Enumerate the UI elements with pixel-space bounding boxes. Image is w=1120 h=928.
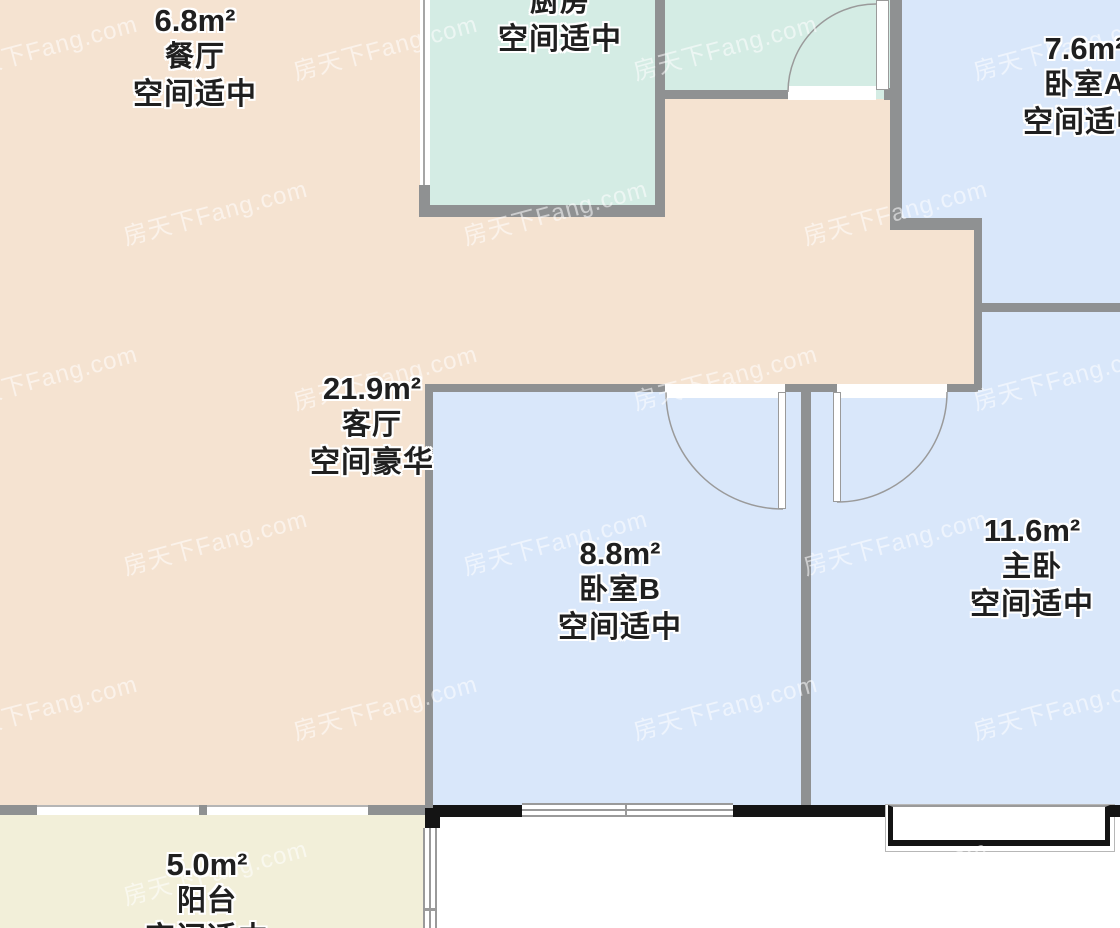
watermark-text: 房天下Fang.com (459, 829, 651, 912)
room-label-bedroom-a: 7.6m² 卧室A 空间适中 (955, 30, 1120, 141)
master-space-rating: 空间适中 (902, 586, 1120, 623)
floor-plan: 6.8m² 餐厅 空间适中 厨房 空间适中 7.6m² 卧室A 空间适中 21.… (0, 0, 1120, 928)
living-name: 客厅 (242, 407, 502, 444)
balcony-top-wall-1 (0, 805, 37, 815)
room-label-master: 11.6m² 主卧 空间适中 (902, 512, 1120, 623)
balcony-window (423, 828, 437, 928)
balcony-mullion (199, 805, 207, 815)
entry-door-leaf (876, 0, 889, 90)
balcony-opening-2 (207, 805, 368, 815)
room-label-dining: 6.8m² 餐厅 空间适中 (65, 2, 325, 113)
bedroom-divider-wall (801, 392, 811, 808)
kitchen-entry-floor (665, 0, 902, 99)
master-name: 主卧 (902, 549, 1120, 586)
kitchen-space-rating: 空间适中 (430, 21, 690, 58)
room-label-living: 21.9m² 客厅 空间豪华 (242, 370, 502, 481)
entry-right-wall (890, 0, 902, 230)
bedroom-a-bottom-left-wall (890, 218, 982, 230)
dining-space-rating: 空间适中 (65, 76, 325, 113)
master-door-opening (837, 384, 947, 398)
window-center-line (429, 828, 431, 928)
bedroom-a-bottom-right-wall (982, 303, 1120, 312)
living-area-value: 21.9m² (242, 370, 502, 407)
entry-bottom-wall (665, 90, 788, 99)
bedroom-b-area-value: 8.8m² (490, 535, 750, 572)
bedrooms-top-wall-2 (785, 384, 837, 392)
bedroom-a-name: 卧室A (955, 67, 1120, 104)
dining-area-value: 6.8m² (65, 2, 325, 39)
bedroom-b-window (522, 803, 733, 817)
dining-name: 餐厅 (65, 39, 325, 76)
bedroom-b-name: 卧室B (490, 572, 750, 609)
bedrooms-top-wall-3 (947, 384, 978, 392)
kitchen-left-partition (423, 0, 425, 188)
kitchen-bottom-wall (419, 205, 665, 217)
master-area-value: 11.6m² (902, 512, 1120, 549)
bedroom-b-door-opening (665, 384, 785, 398)
bedroom-a-space-rating: 空间适中 (955, 104, 1120, 141)
balcony-area-value: 5.0m² (77, 846, 337, 883)
master-door-leaf (833, 392, 841, 502)
room-label-bedroom-b: 8.8m² 卧室B 空间适中 (490, 535, 750, 646)
bedroom-a-area-value: 7.6m² (955, 30, 1120, 67)
room-label-kitchen: 厨房 空间适中 (430, 0, 690, 58)
living-space-rating: 空间豪华 (242, 444, 502, 481)
entry-door-opening (788, 86, 876, 100)
bedroom-b-bottom-wall-2 (733, 805, 885, 817)
kitchen-left-opening (420, 0, 430, 205)
balcony-name: 阳台 (77, 883, 337, 920)
room-label-balcony: 5.0m² 阳台 空间适中 (77, 846, 337, 928)
bedroom-b-space-rating: 空间适中 (490, 609, 750, 646)
balcony-opening-1 (37, 805, 199, 815)
balcony-top-wall-2 (368, 805, 430, 815)
kitchen-name: 厨房 (430, 0, 690, 21)
bedroom-a-left-wall (974, 218, 982, 390)
bay-window (888, 805, 1110, 846)
bedroom-b-door-leaf (778, 392, 786, 509)
window-mullion (425, 908, 435, 911)
right-wall-stub (1110, 805, 1120, 817)
balcony-space-rating: 空间适中 (77, 920, 337, 928)
window-divider (625, 805, 627, 815)
bedroom-b-bottom-wall-1 (433, 805, 522, 817)
window-center-line (522, 809, 733, 811)
